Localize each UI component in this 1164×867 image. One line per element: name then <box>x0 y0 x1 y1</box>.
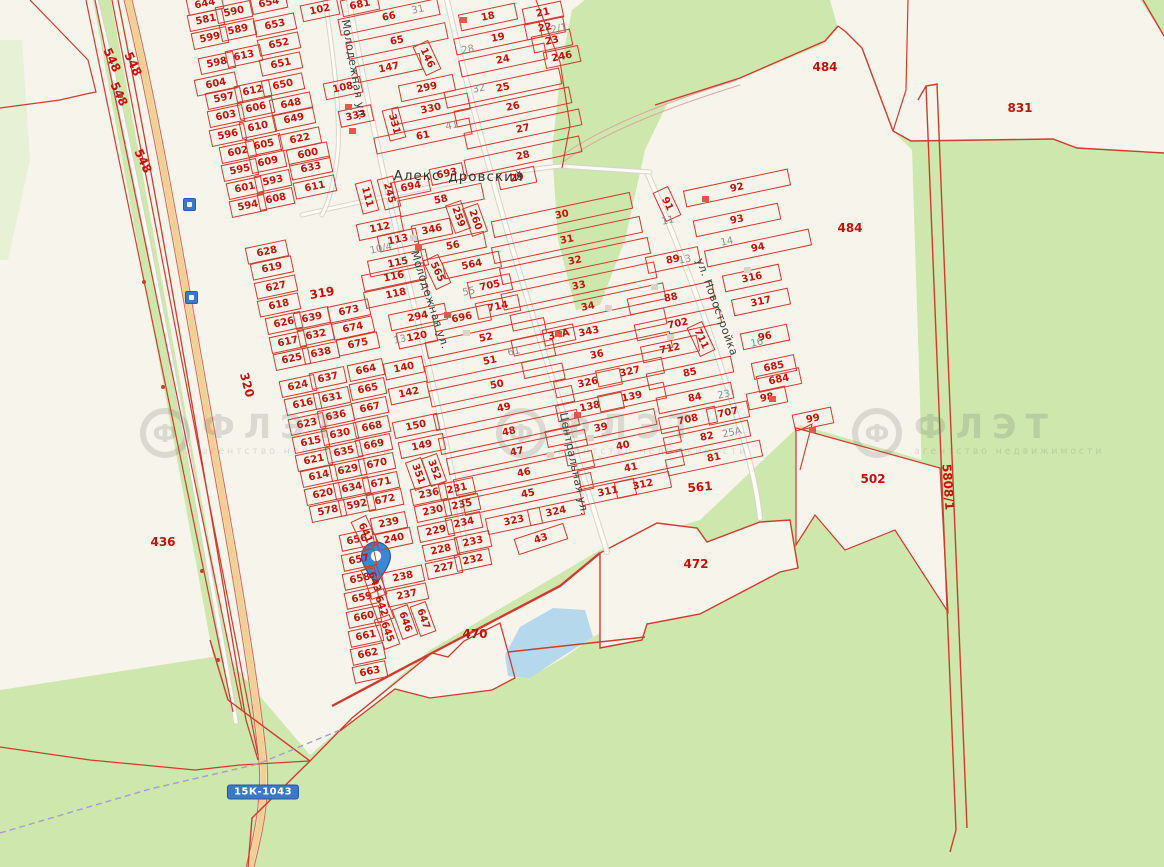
area-label: 484 <box>812 60 837 74</box>
boundary-point <box>161 385 165 389</box>
parcel-label: 98 <box>746 386 789 411</box>
address-label: 10/4 <box>369 241 393 256</box>
area-label: 548 <box>131 147 154 176</box>
area-label: 472 <box>683 557 708 571</box>
area-label: 561 <box>687 479 713 495</box>
map-canvas[interactable]: 6446545815905995896536525986136516046505… <box>0 0 1164 867</box>
address-label: 23 <box>717 388 732 401</box>
parcel-label: 102 <box>300 0 341 22</box>
building-footprint <box>809 427 816 433</box>
building-footprint <box>410 235 417 241</box>
boundary-point <box>216 658 220 662</box>
building-footprint <box>345 104 352 110</box>
building-footprint <box>651 284 658 290</box>
road-marker-icon <box>183 198 196 211</box>
settlement-name-label: дровский <box>448 169 523 185</box>
parcel-label: 140 <box>383 356 426 381</box>
area-label: 502 <box>860 472 885 486</box>
area-label: 320 <box>237 371 257 399</box>
building-footprint <box>667 334 674 340</box>
building-footprint <box>769 396 776 402</box>
area-label: 484 <box>837 221 862 235</box>
parcel-label: 147 <box>355 53 423 83</box>
building-footprint <box>587 435 594 441</box>
parcel-label: 142 <box>388 381 431 406</box>
parcel-label: 111 <box>355 179 380 214</box>
boundary-point <box>119 94 123 98</box>
area-label: 831 <box>1007 101 1032 115</box>
building-footprint <box>547 452 554 458</box>
building-footprint <box>555 331 562 337</box>
building-footprint <box>744 267 751 273</box>
area-label: 436 <box>150 535 175 549</box>
area-label: 470 <box>462 627 487 641</box>
building-footprint <box>444 312 451 318</box>
parcel-label: 316 <box>722 264 782 293</box>
building-footprint <box>460 17 467 23</box>
building-footprint <box>349 128 356 134</box>
boundary-point <box>142 280 146 284</box>
boundary-point <box>200 569 204 573</box>
building-footprint <box>463 330 470 336</box>
settlement-name-label: Алекс <box>394 168 441 184</box>
building-footprint <box>574 412 581 418</box>
area-label: 548 <box>121 50 144 79</box>
parcel-label: 613 <box>225 44 264 68</box>
area-label: 5808/1 <box>939 463 956 510</box>
address-label: 16 <box>750 336 765 349</box>
road-number-badge: 15К-1043 <box>227 785 299 800</box>
parcel-label: 96 <box>740 324 790 351</box>
address-label: 11 <box>661 214 676 227</box>
parcel-label: 317 <box>731 288 791 317</box>
area-label: 548 <box>100 46 123 75</box>
parcel-label: 260 <box>462 203 488 237</box>
building-footprint <box>605 305 612 311</box>
building-footprint <box>702 196 709 202</box>
building-footprint <box>415 244 422 250</box>
address-label: 28 <box>461 43 476 56</box>
area-label: 319 <box>308 284 335 302</box>
parcel-label: 92 <box>683 169 791 208</box>
parcel-label: 94 <box>704 229 812 268</box>
road-marker-icon <box>185 291 198 304</box>
parcel-label: 654 <box>250 0 289 15</box>
map-labels: 6446545815905995896536525986136516046505… <box>0 0 1164 867</box>
parcel-label: 93 <box>693 203 782 238</box>
